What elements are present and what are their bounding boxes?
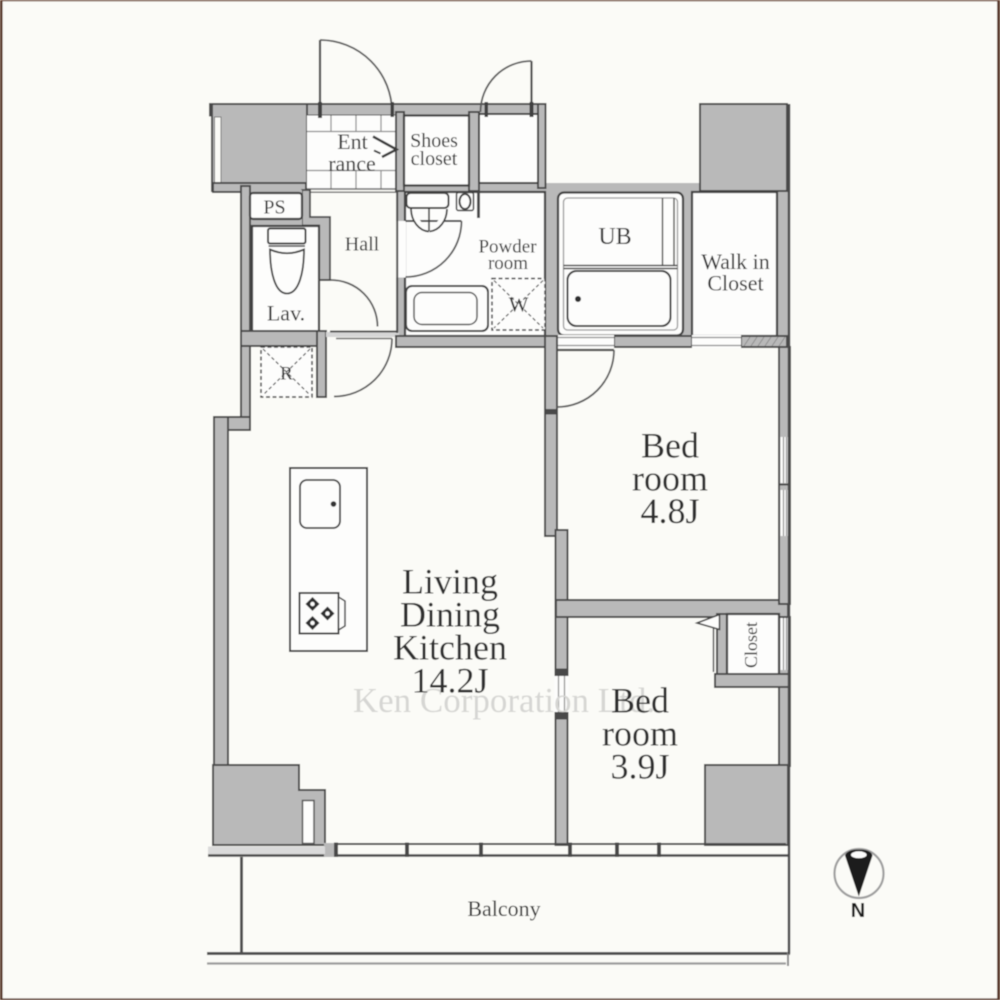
- svg-text:Closet: Closet: [707, 271, 763, 296]
- svg-text:N: N: [851, 900, 865, 922]
- svg-text:R: R: [280, 364, 293, 385]
- svg-text:14.2J: 14.2J: [411, 661, 488, 701]
- svg-text:room: room: [488, 253, 528, 274]
- svg-text:Lav.: Lav.: [267, 301, 305, 326]
- svg-text:PS: PS: [263, 197, 285, 219]
- svg-text:UB: UB: [598, 224, 631, 250]
- svg-text:Hall: Hall: [345, 234, 380, 256]
- svg-text:4.8J: 4.8J: [640, 491, 699, 531]
- svg-text:rance: rance: [328, 151, 376, 176]
- svg-text:Closet: Closet: [741, 622, 761, 668]
- svg-text:Balcony: Balcony: [467, 896, 540, 921]
- svg-text:W: W: [509, 293, 529, 317]
- svg-text:closet: closet: [411, 148, 458, 170]
- svg-text:3.9J: 3.9J: [610, 747, 669, 787]
